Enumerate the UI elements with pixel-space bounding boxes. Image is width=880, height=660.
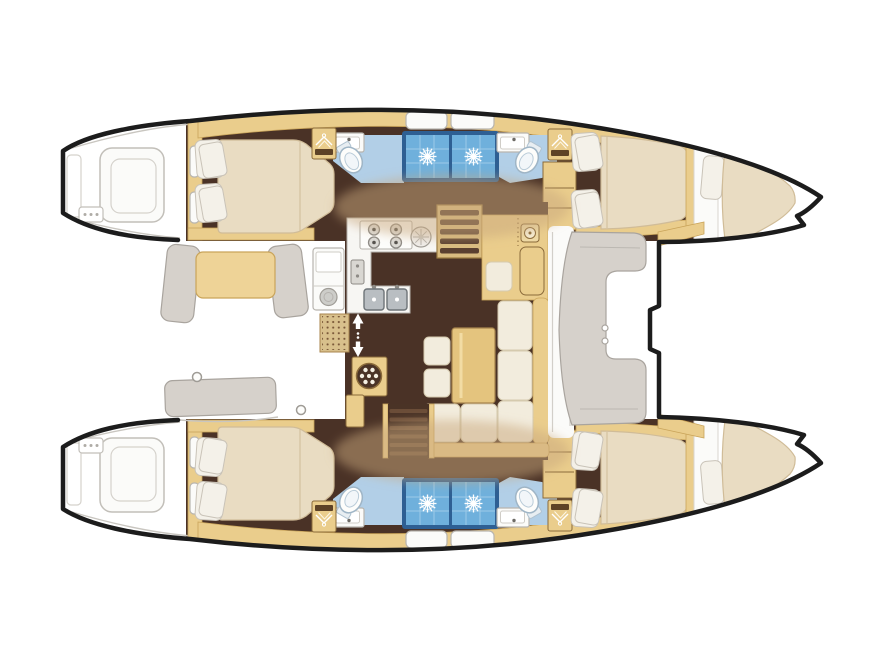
cockpit-module (313, 248, 344, 310)
cockpit-table (164, 377, 276, 417)
floor-plan-page: Catamaran yacht interior layout — top-do… (0, 0, 880, 660)
cup-holder-ring-icon (193, 373, 202, 382)
cup-holder-ring-icon (297, 406, 306, 415)
latch-ring (602, 338, 608, 344)
cockpit-bench-cushion (196, 252, 275, 298)
catamaran-floor-plan: Catamaran yacht interior layout — top-do… (0, 0, 880, 660)
stool (424, 369, 450, 397)
latch-ring (602, 325, 608, 331)
saloon-table (452, 328, 495, 403)
nav-seat-cushion (486, 262, 512, 291)
washing-machine-icon (352, 357, 387, 396)
round-basin (320, 289, 337, 306)
entry-step-mat (320, 314, 349, 352)
stool (424, 337, 450, 365)
sofa-back (533, 298, 549, 444)
galley-appliance-icon (351, 260, 364, 284)
galley-cabinet (346, 395, 364, 427)
